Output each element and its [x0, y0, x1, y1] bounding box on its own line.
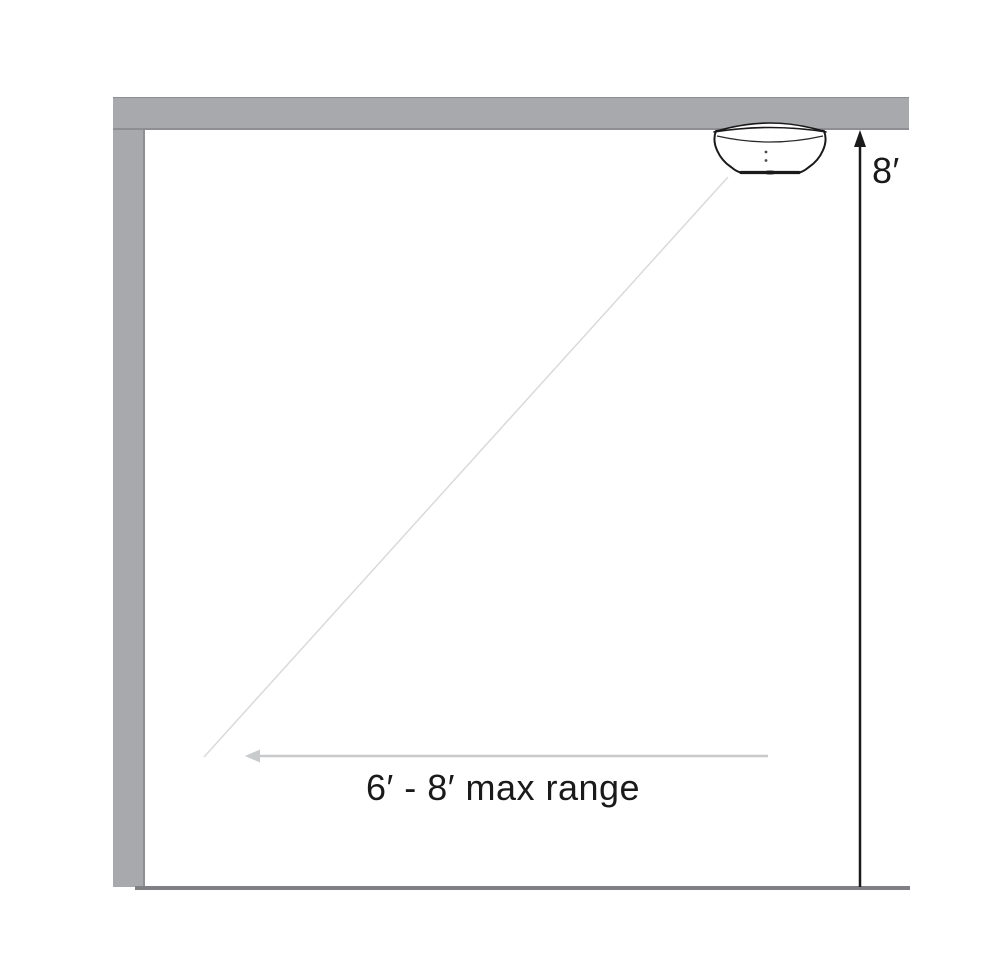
- mounting-range-diagram: 8′ 6′ - 8′ max range: [0, 0, 990, 954]
- range-arrow-head-icon: [245, 750, 260, 763]
- detection-beam-line: [204, 177, 728, 757]
- ceiling-sensor-icon: [714, 123, 826, 175]
- diagram-overlay: [0, 0, 990, 954]
- sensor-bottom-notch: [763, 171, 777, 175]
- height-arrow-head-icon: [854, 130, 866, 147]
- sensor-body: [714, 127, 825, 174]
- sensor-led-dot-bottom: [765, 159, 768, 162]
- max-range-label: 6′ - 8′ max range: [366, 770, 640, 806]
- sensor-led-dot-top: [765, 151, 768, 154]
- ceiling-height-label: 8′: [872, 153, 900, 189]
